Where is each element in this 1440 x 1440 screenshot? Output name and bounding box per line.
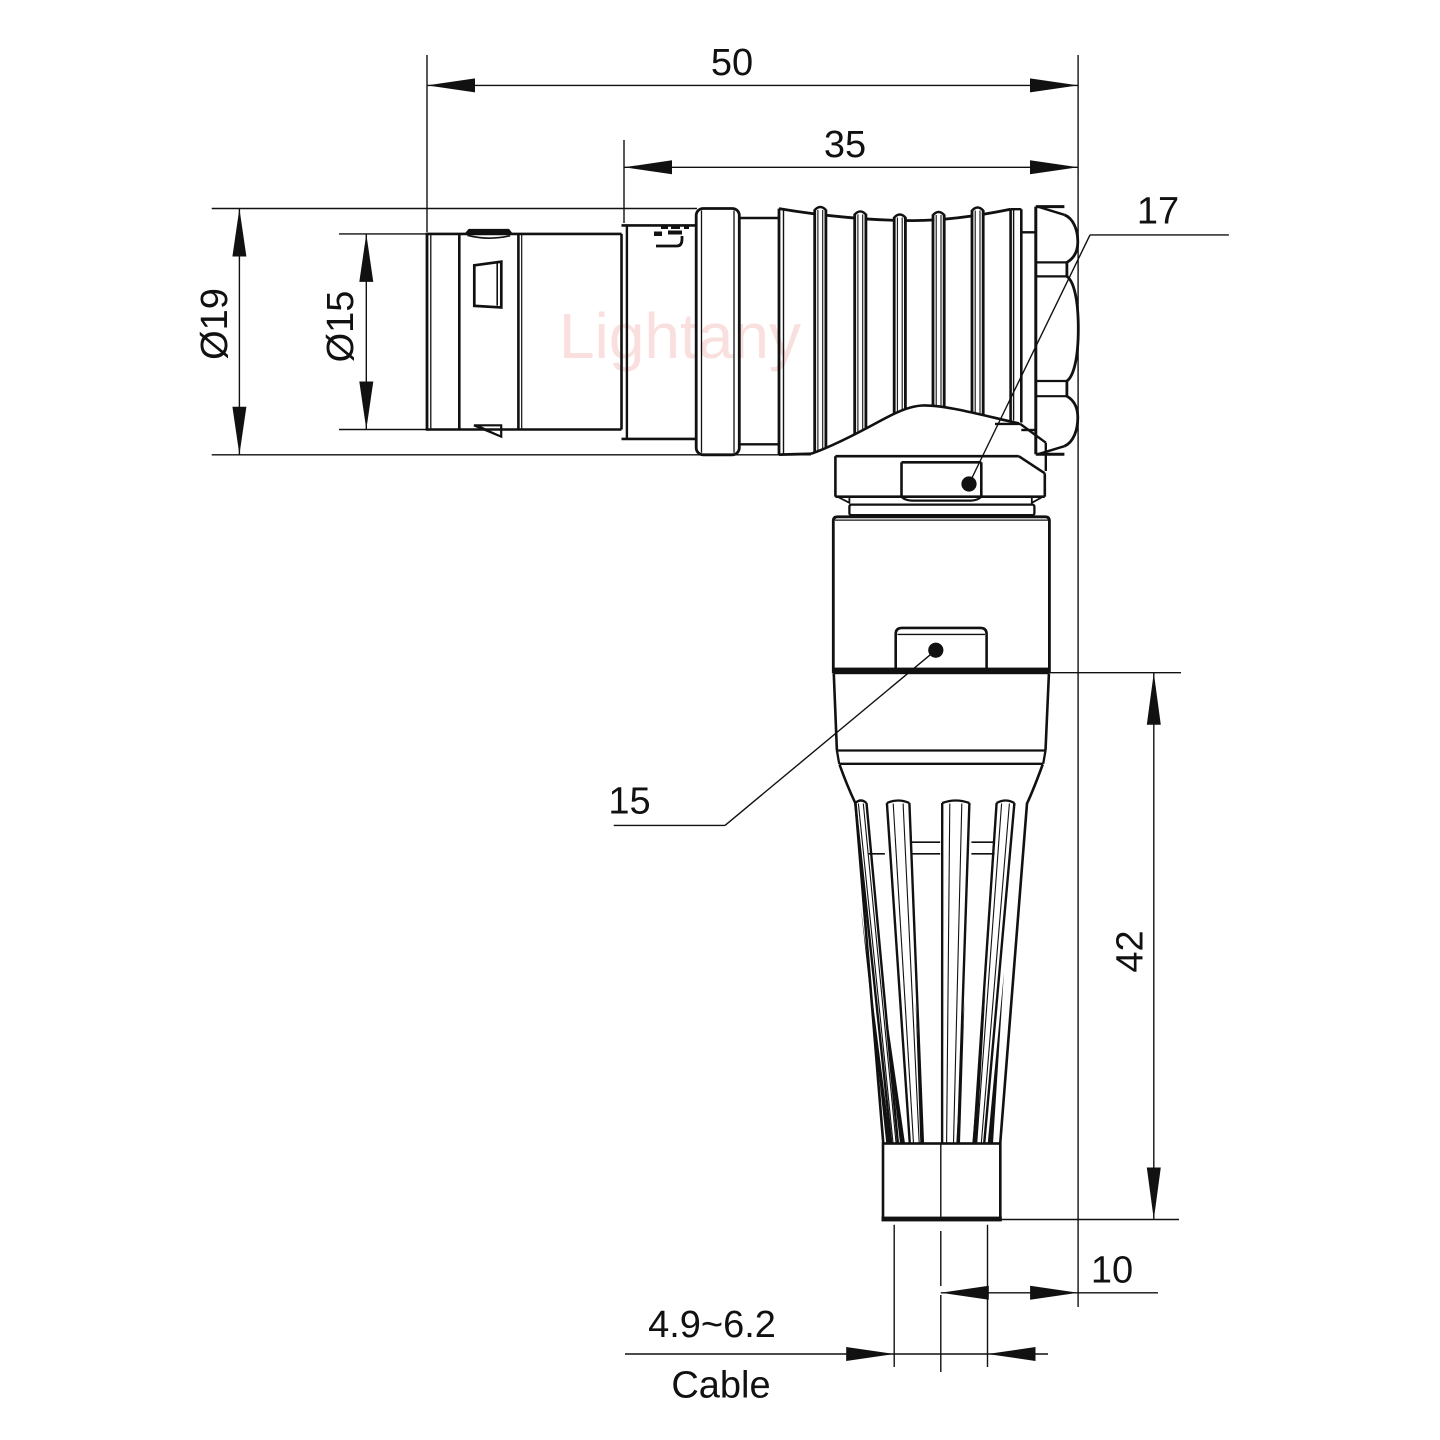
svg-text:17: 17 (1137, 191, 1179, 233)
svg-text:35: 35 (824, 124, 866, 166)
svg-text:Cable: Cable (671, 1365, 770, 1407)
svg-text:50: 50 (711, 42, 753, 84)
svg-text:Ø15: Ø15 (320, 291, 362, 363)
svg-text:42: 42 (1110, 930, 1152, 972)
svg-text:15: 15 (608, 781, 650, 823)
svg-text:Ø19: Ø19 (194, 288, 236, 360)
svg-text:10: 10 (1091, 1250, 1133, 1292)
svg-text:Lightany: Lightany (559, 300, 801, 372)
svg-text:4.9~6.2: 4.9~6.2 (648, 1304, 776, 1346)
